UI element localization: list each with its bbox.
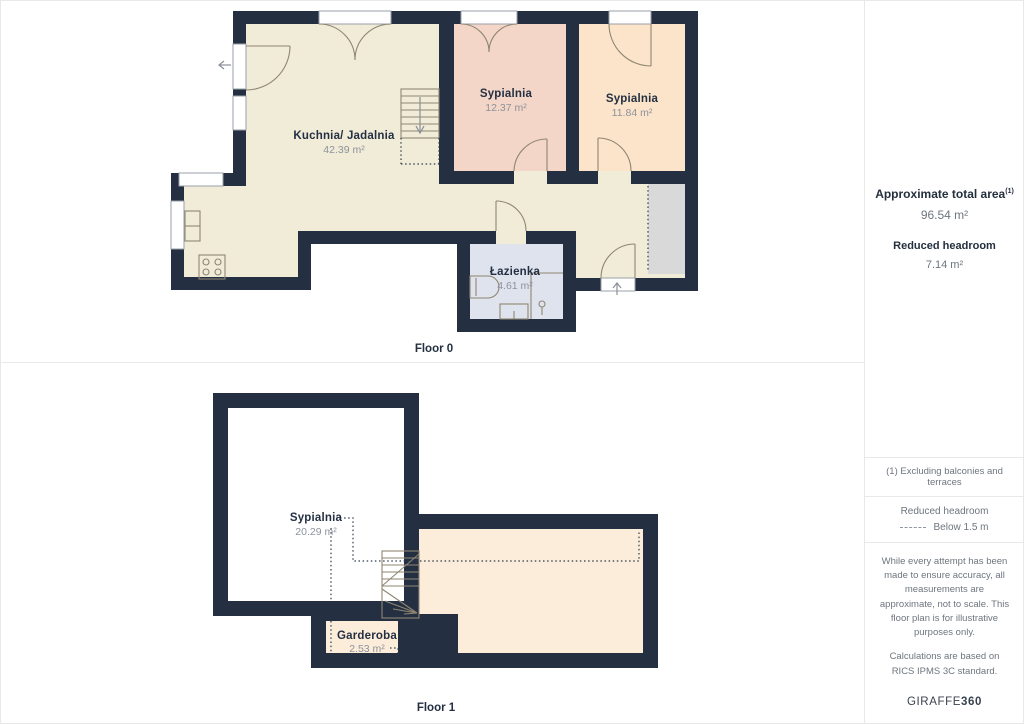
room-area: 42.39 m² [323, 144, 365, 156]
legend-title: Reduced headroom [901, 506, 989, 517]
disclaimer-section: While every attempt has been made to ens… [865, 542, 1024, 723]
window [179, 173, 223, 186]
room-bedroom3-floor [228, 408, 404, 601]
room-label: Kuchnia/ Jadalnia [293, 130, 395, 142]
info-sidebar: Approximate total area(1) 96.54 m² Reduc… [864, 1, 1024, 723]
room-area: 20.29 m² [295, 526, 337, 538]
wall-bedrooms-hallway [439, 171, 691, 184]
window [233, 96, 246, 130]
floor-1-plan: Sypialnia 20.29 m² Garderoba 2.53 m² Flo… [213, 393, 658, 714]
closet-area [648, 184, 685, 274]
floorplan-page: Kuchnia/ Jadalnia 42.39 m² Sypialnia 12.… [0, 0, 1024, 724]
room-area: 2.53 m² [349, 643, 385, 655]
giraffe360-logo: GIRAFFE360 [907, 694, 982, 711]
disclaimer-text: While every attempt has been made to ens… [878, 555, 1011, 641]
dashed-line-sample [900, 527, 926, 528]
room-label: Sypialnia [606, 93, 659, 105]
brand-number: 360 [961, 696, 982, 708]
floor-0-plan: Kuchnia/ Jadalnia 42.39 m² Sypialnia 12.… [171, 11, 698, 355]
total-area-value: 96.54 m² [921, 208, 968, 222]
room-area: 4.61 m² [497, 280, 533, 292]
footnote-text: (1) Excluding balconies and terraces [873, 466, 1016, 488]
reduced-headroom-value: 7.14 m² [926, 259, 963, 271]
brand-name: GIRAFFE [907, 696, 961, 708]
legend-value: Below 1.5 m [933, 522, 988, 533]
area-summary-section: Approximate total area(1) 96.54 m² Reduc… [865, 1, 1024, 457]
total-area-footnote-ref: (1) [1005, 188, 1014, 195]
wall-block [398, 614, 458, 653]
footnote-section: (1) Excluding balconies and terraces [865, 457, 1024, 496]
floor1-label: Floor 1 [417, 702, 456, 714]
room-area: 11.84 m² [612, 107, 653, 119]
reduced-headroom-legend-section: Reduced headroom Below 1.5 m [865, 496, 1024, 542]
entrance-arrow-icon [219, 61, 231, 69]
room-label: Łazienka [490, 266, 541, 278]
wall-kitchen-bedroom1 [439, 11, 454, 184]
room-label: Sypialnia [290, 512, 343, 524]
window [171, 201, 184, 249]
total-area-label-text: Approximate total area [875, 187, 1005, 201]
total-area-label: Approximate total area(1) [875, 187, 1014, 201]
room-label: Garderoba [337, 630, 397, 642]
room-area: 12.37 m² [485, 102, 527, 114]
reduced-headroom-label: Reduced headroom [893, 240, 996, 252]
floor0-label: Floor 0 [415, 343, 453, 355]
standard-text: Calculations are based on RICS IPMS 3C s… [878, 650, 1011, 679]
wall-bedroom1-bedroom2 [566, 11, 579, 184]
floorplan-drawing: Kuchnia/ Jadalnia 42.39 m² Sypialnia 12.… [1, 1, 865, 723]
room-label: Sypialnia [480, 88, 533, 100]
